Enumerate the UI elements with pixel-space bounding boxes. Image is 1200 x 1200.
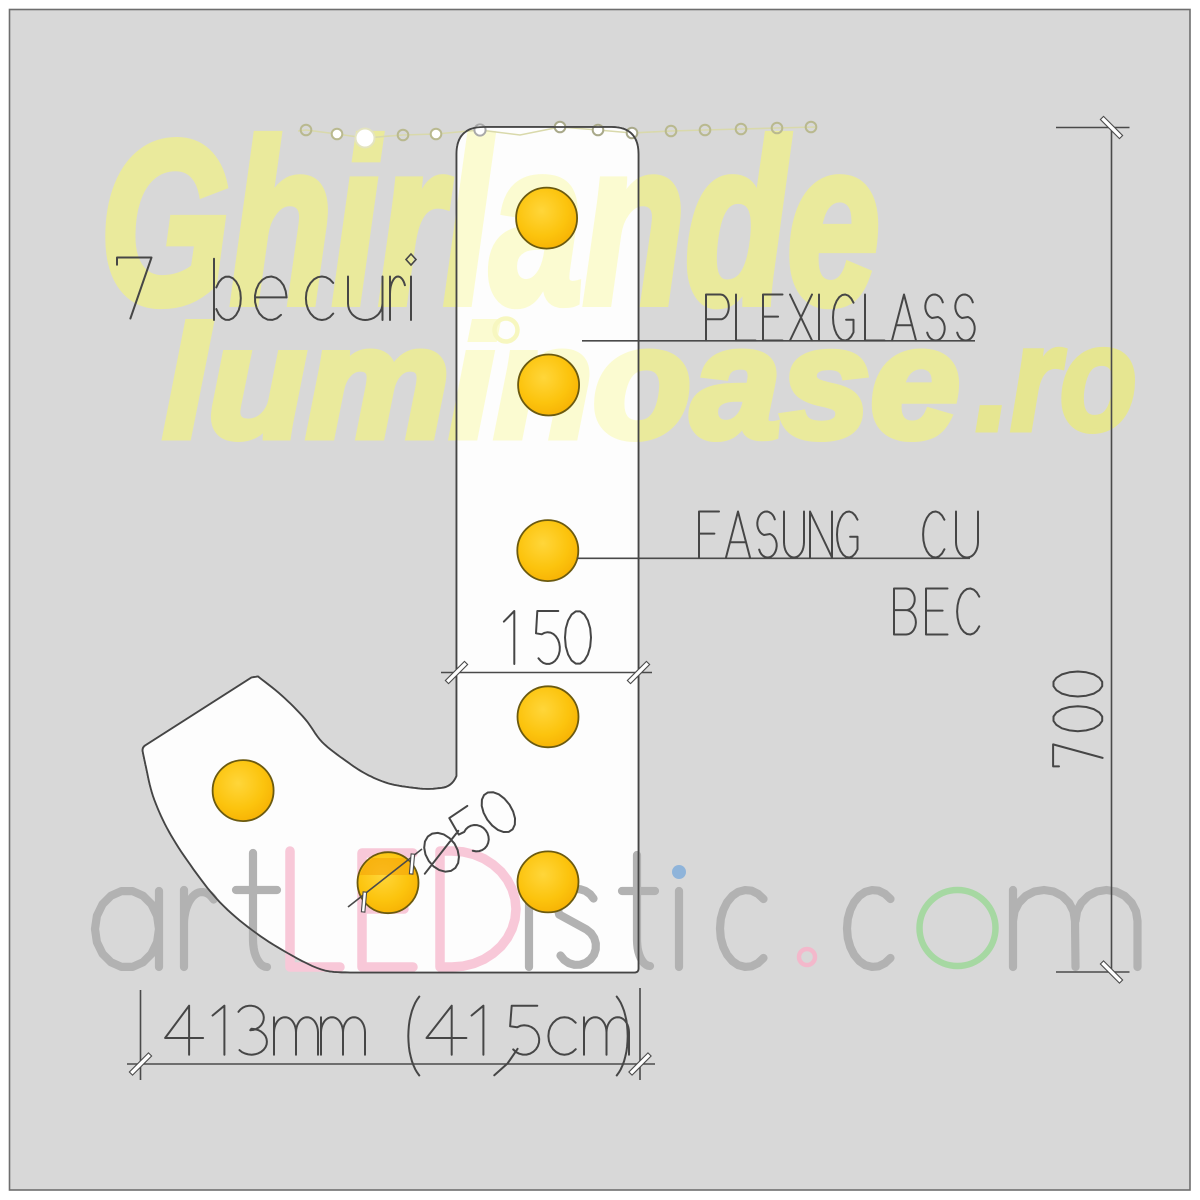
svg-text:.ro: .ro xyxy=(975,294,1137,462)
